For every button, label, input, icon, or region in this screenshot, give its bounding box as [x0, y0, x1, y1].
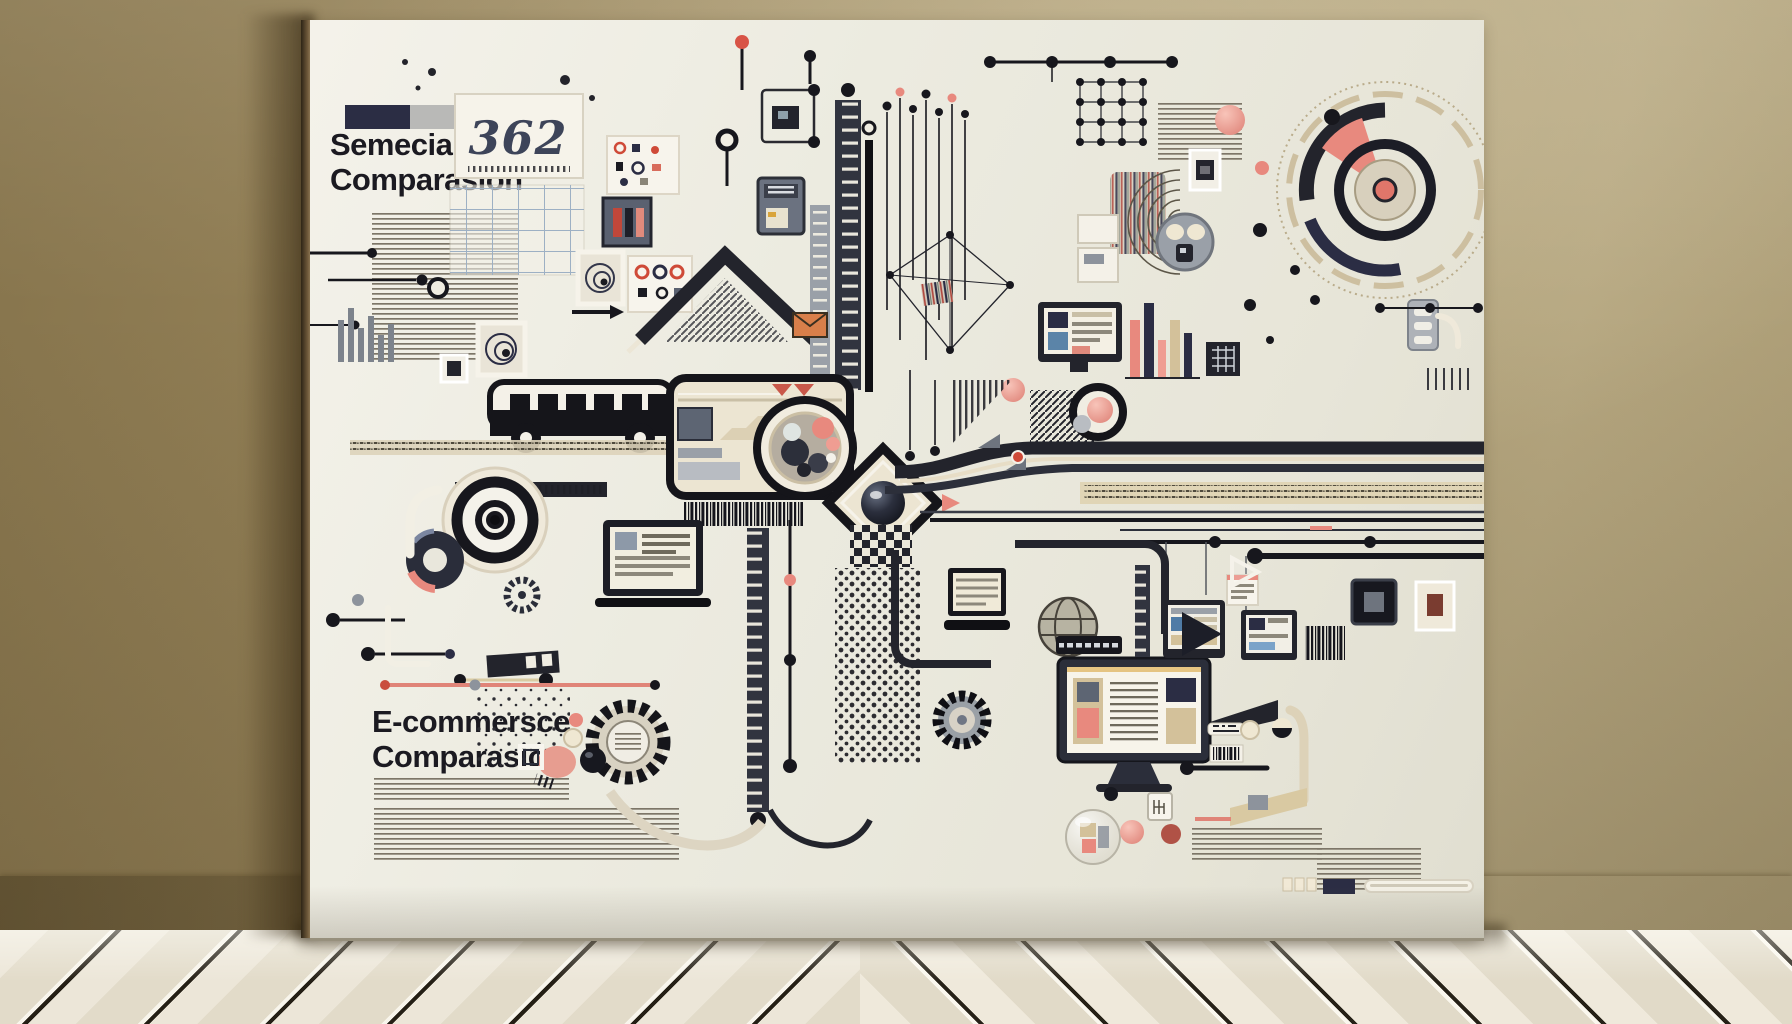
dial-knob-icon	[1157, 214, 1213, 270]
photo-frame-icon	[1416, 582, 1454, 630]
floppy-icon	[758, 178, 804, 234]
wheel-gear-icon	[938, 696, 986, 744]
keyboard-keys	[1059, 639, 1119, 651]
node-grid	[1076, 78, 1147, 146]
canvas-bottom-edge	[310, 938, 1484, 941]
chip-icon-dark	[1352, 580, 1396, 624]
arrow-icon	[572, 305, 624, 319]
dotted-bar-top	[984, 56, 1178, 82]
abstract-collage: Semecial Comparasion 362	[310, 20, 1484, 938]
doodle-chip	[1148, 793, 1172, 820]
gray-chip	[1248, 795, 1268, 810]
ruler-ribs	[1428, 368, 1468, 390]
speaker-donut-icon	[406, 531, 464, 589]
stat-number-panel: 362	[455, 94, 583, 178]
glass-sphere-icon	[1066, 810, 1120, 864]
hub-salmon-arrow	[942, 494, 960, 512]
map-pin-dot	[1012, 451, 1024, 463]
frame-with-pins	[718, 35, 820, 186]
tan-band	[1230, 788, 1307, 826]
knob-ring-icon	[429, 279, 447, 297]
chip-grid-icon	[1206, 342, 1240, 376]
radial-aperture-icon	[1277, 82, 1484, 298]
canvas-artwork: Semecial Comparasion 362	[310, 20, 1484, 938]
canvas-inner-shade	[310, 886, 1484, 938]
barcode-chip	[1210, 745, 1243, 762]
mini-screen-right	[1241, 610, 1297, 660]
two-tone-pebble	[1272, 718, 1292, 738]
barcode-pill	[1208, 723, 1244, 735]
picture-frame-icon	[441, 355, 467, 382]
hook-shape	[1438, 316, 1458, 346]
dotted-line-corner	[1375, 303, 1483, 313]
salmon-dot-1	[1255, 161, 1269, 175]
room-scene: Semecial Comparasion 362	[0, 0, 1792, 1024]
slot-strip	[486, 651, 559, 678]
monitor-stand	[1108, 762, 1160, 784]
black-pebble	[1104, 787, 1118, 801]
pink-dot-bottom	[1120, 820, 1144, 844]
pink-sphere	[1215, 105, 1245, 135]
laptop-browser-left	[595, 520, 711, 607]
monitor-icon-small	[1038, 302, 1122, 372]
ticker-text-left	[350, 442, 680, 453]
salmon-button	[569, 713, 583, 727]
canvas-side-edge	[301, 20, 310, 938]
mini-bar-panel	[603, 198, 651, 246]
black-knob	[580, 747, 606, 773]
barcode-icon-2	[1305, 626, 1345, 660]
checker-patch	[850, 525, 912, 567]
white-panel-stack	[1078, 215, 1118, 282]
film-strip-down	[747, 520, 797, 828]
black-knob-glint	[585, 752, 593, 758]
stat-number: 362	[468, 111, 567, 165]
ticker-strip-right	[1080, 482, 1484, 504]
cream-button	[564, 729, 582, 747]
wireframe-kite	[886, 231, 1014, 354]
bar-chart-columns	[1125, 303, 1200, 378]
data-grid-lines	[450, 185, 584, 275]
chip-frame-icon	[1190, 150, 1220, 190]
title-line-1: Semecial	[330, 127, 460, 162]
salmon-dash	[1195, 817, 1231, 821]
dark-red-dot	[1161, 824, 1181, 844]
laptop-icon-small	[944, 568, 1010, 630]
cream-pebble	[1241, 721, 1259, 739]
spiral-frame-icon	[478, 323, 525, 375]
gear-icon-small	[507, 580, 537, 610]
cream-pipe-right	[1290, 710, 1304, 800]
rib-strip	[1135, 565, 1150, 657]
pink-ring-knob	[1073, 387, 1123, 437]
spiral-frame-icon-2	[578, 252, 623, 304]
paragraph-block-4a	[1192, 826, 1322, 860]
symbols-panel	[607, 136, 679, 194]
ladder-tower	[810, 83, 875, 392]
